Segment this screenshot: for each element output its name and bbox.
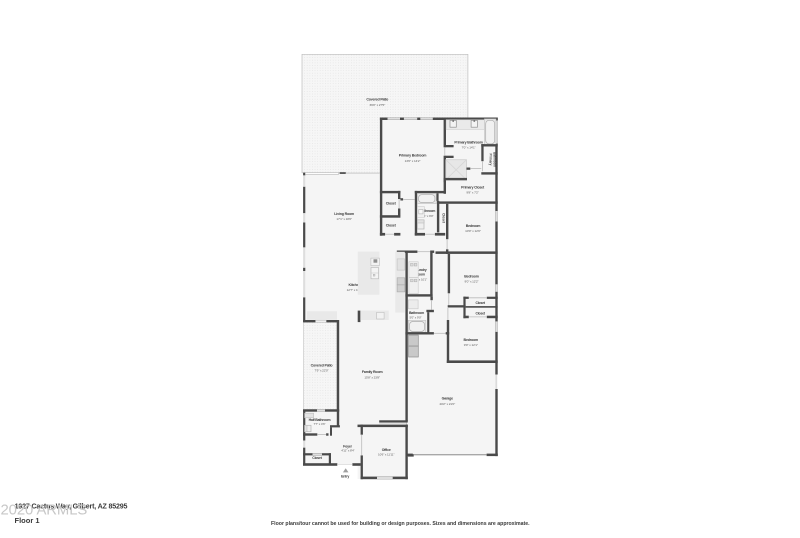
svg-text:9'0" x 12'1": 9'0" x 12'1"	[464, 343, 478, 347]
svg-text:Entry: Entry	[341, 475, 349, 479]
svg-text:Living Room: Living Room	[334, 212, 354, 216]
svg-text:Closet: Closet	[386, 202, 397, 206]
svg-text:Bathroom: Bathroom	[409, 311, 424, 315]
svg-text:Bathroom: Bathroom	[493, 152, 497, 167]
svg-text:7'9" x 22'0": 7'9" x 22'0"	[314, 369, 328, 373]
svg-text:Closet: Closet	[475, 301, 485, 305]
svg-text:9'8" x 7'2": 9'8" x 7'2"	[466, 191, 478, 195]
svg-text:Closet: Closet	[475, 311, 485, 315]
svg-text:17'1" x 18'0": 17'1" x 18'0"	[336, 217, 352, 221]
svg-text:Primary Closet: Primary Closet	[461, 185, 485, 189]
svg-text:20'2" x 21'0": 20'2" x 21'0"	[439, 402, 455, 406]
svg-text:Floor plans/tour cannot be use: Floor plans/tour cannot be used for buil…	[271, 521, 530, 527]
svg-text:Covered Patio: Covered Patio	[366, 98, 389, 102]
svg-text:10'6" x 11'11": 10'6" x 11'11"	[378, 453, 394, 457]
svg-text:9'0" x 12'2": 9'0" x 12'2"	[464, 280, 478, 284]
svg-text:Primary Bathroom: Primary Bathroom	[454, 141, 482, 145]
svg-text:15'8" x 23'8": 15'8" x 23'8"	[364, 375, 380, 379]
svg-text:7'0" x 14'1": 7'0" x 14'1"	[462, 146, 476, 150]
svg-text:Bedroom: Bedroom	[466, 224, 481, 228]
svg-text:4'11" x 8'4": 4'11" x 8'4"	[341, 448, 354, 452]
svg-text:13'0" x 14'2": 13'0" x 14'2"	[405, 159, 421, 163]
svg-text:Closet: Closet	[312, 456, 322, 460]
svg-text:10'0" x 12'0": 10'0" x 12'0"	[465, 229, 481, 233]
svg-text:36'0" x 27'5": 36'0" x 27'5"	[369, 103, 385, 107]
svg-text:Closet: Closet	[442, 213, 446, 224]
svg-text:Covered Patio: Covered Patio	[311, 363, 334, 367]
svg-text:Primary: Primary	[489, 154, 493, 166]
svg-text:Floor 1: Floor 1	[15, 516, 40, 525]
svg-text:Bedroom: Bedroom	[464, 274, 479, 278]
svg-text:Primary Bedroom: Primary Bedroom	[399, 153, 426, 157]
svg-text:7'7" x 4'6": 7'7" x 4'6"	[313, 422, 325, 426]
svg-text:5'0" x 9'0": 5'0" x 9'0"	[409, 315, 421, 319]
svg-text:Office: Office	[382, 448, 391, 452]
svg-text:Family Room: Family Room	[362, 370, 383, 374]
svg-text:Closet: Closet	[386, 223, 397, 227]
svg-text:Bedroom: Bedroom	[464, 338, 479, 342]
svg-text:Garage: Garage	[442, 397, 453, 401]
